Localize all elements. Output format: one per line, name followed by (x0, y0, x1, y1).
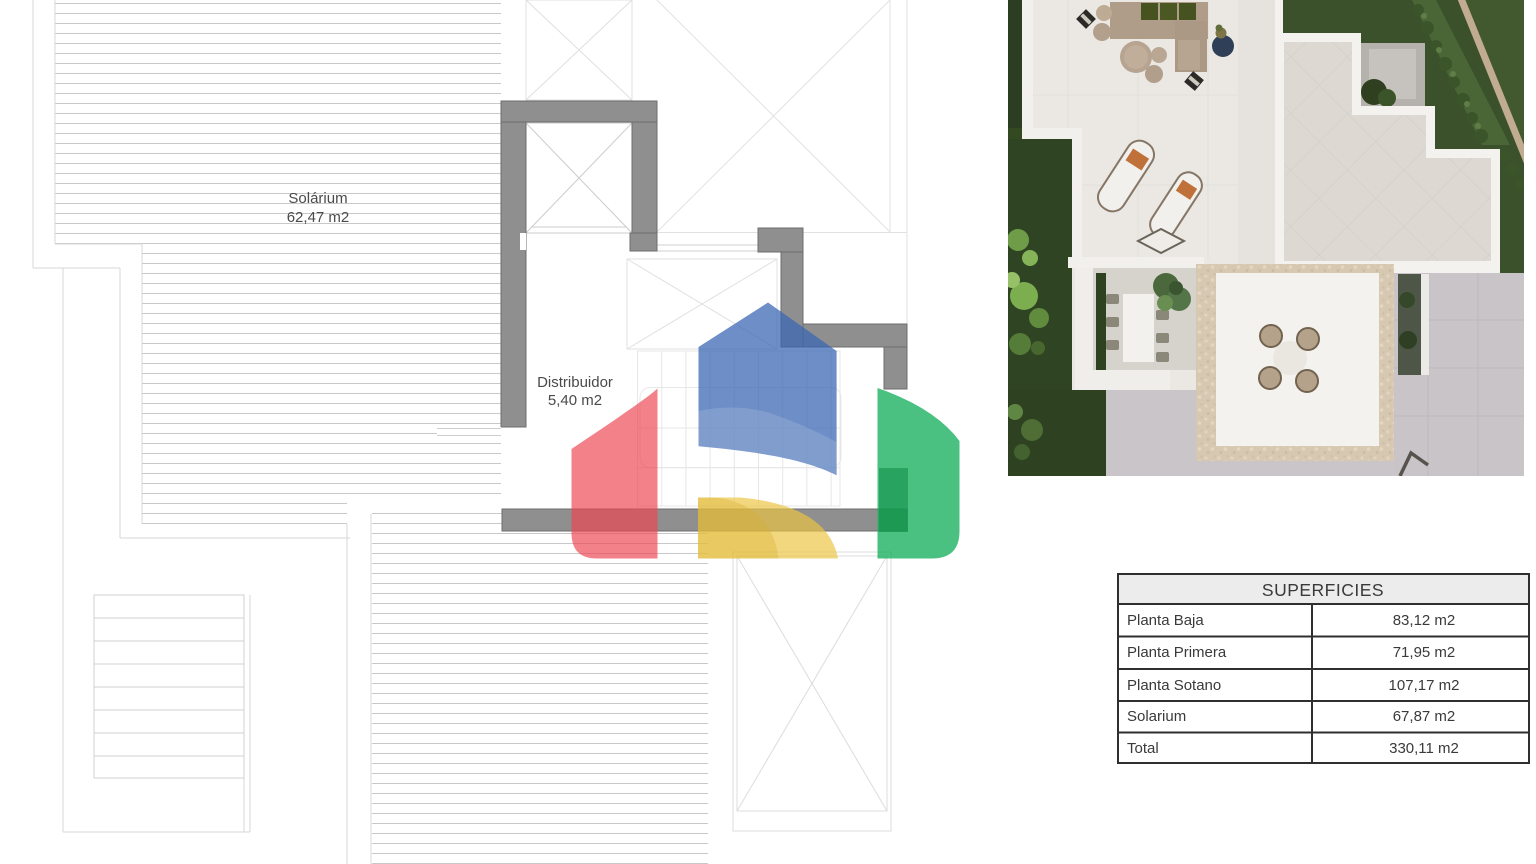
svg-text:83,12 m2: 83,12 m2 (1393, 612, 1456, 629)
svg-text:SUPERFICIES: SUPERFICIES (1262, 580, 1384, 600)
svg-text:Planta Sotano: Planta Sotano (1127, 677, 1221, 694)
svg-text:62,47 m2: 62,47 m2 (287, 209, 350, 226)
svg-text:Total: Total (1127, 740, 1159, 757)
svg-text:Solárium: Solárium (288, 190, 347, 207)
svg-text:Solarium: Solarium (1127, 708, 1186, 725)
svg-text:330,11 m2: 330,11 m2 (1389, 740, 1459, 757)
svg-text:107,17 m2: 107,17 m2 (1389, 677, 1460, 694)
svg-text:5,40 m2: 5,40 m2 (548, 392, 602, 409)
svg-text:Planta Primera: Planta Primera (1127, 644, 1227, 661)
svg-text:71,95 m2: 71,95 m2 (1393, 644, 1456, 661)
svg-text:Distribuidor: Distribuidor (537, 374, 613, 391)
svg-text:67,87 m2: 67,87 m2 (1393, 708, 1456, 725)
svg-text:Planta Baja: Planta Baja (1127, 612, 1204, 629)
